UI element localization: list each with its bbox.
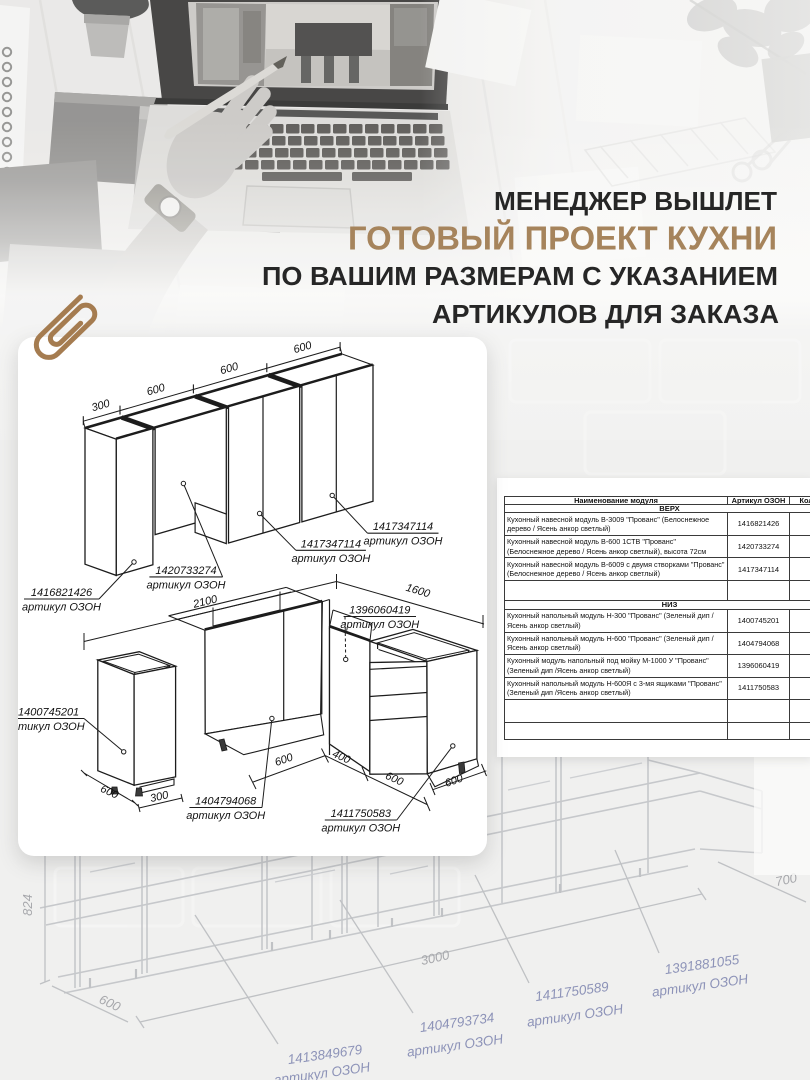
svg-text:артикул ОЗОН: артикул ОЗОН [321, 823, 400, 835]
svg-text:1400745201: 1400745201 [18, 707, 79, 719]
svg-text:300: 300 [149, 789, 170, 805]
svg-text:артикул ОЗОН: артикул ОЗОН [364, 536, 443, 548]
svg-text:1404794068: 1404794068 [195, 796, 257, 808]
svg-text:артикул ОЗОН: артикул ОЗОН [22, 602, 101, 614]
svg-text:300: 300 [90, 397, 112, 414]
svg-text:1396060419: 1396060419 [349, 605, 410, 617]
svg-text:600: 600 [145, 382, 167, 399]
svg-text:артикул ОЗОН: артикул ОЗОН [186, 810, 265, 822]
svg-text:2100: 2100 [191, 593, 219, 611]
svg-text:артикул ОЗОН: артикул ОЗОН [340, 619, 419, 631]
svg-text:1417347114: 1417347114 [301, 538, 361, 550]
svg-text:600: 600 [273, 751, 295, 769]
svg-text:1411750583: 1411750583 [331, 808, 392, 820]
svg-text:1420733274: 1420733274 [155, 565, 216, 577]
svg-text:600: 600 [98, 783, 121, 802]
svg-text:1417347114: 1417347114 [373, 521, 433, 533]
svg-text:артикул ОЗОН: артикул ОЗОН [291, 553, 370, 565]
svg-text:1416821426: 1416821426 [31, 587, 93, 599]
svg-text:тикул ОЗОН: тикул ОЗОН [18, 721, 85, 733]
svg-text:600: 600 [219, 360, 241, 377]
svg-text:600: 600 [292, 339, 314, 356]
svg-text:артикул ОЗОН: артикул ОЗОН [147, 579, 226, 591]
svg-text:1600: 1600 [404, 582, 432, 601]
